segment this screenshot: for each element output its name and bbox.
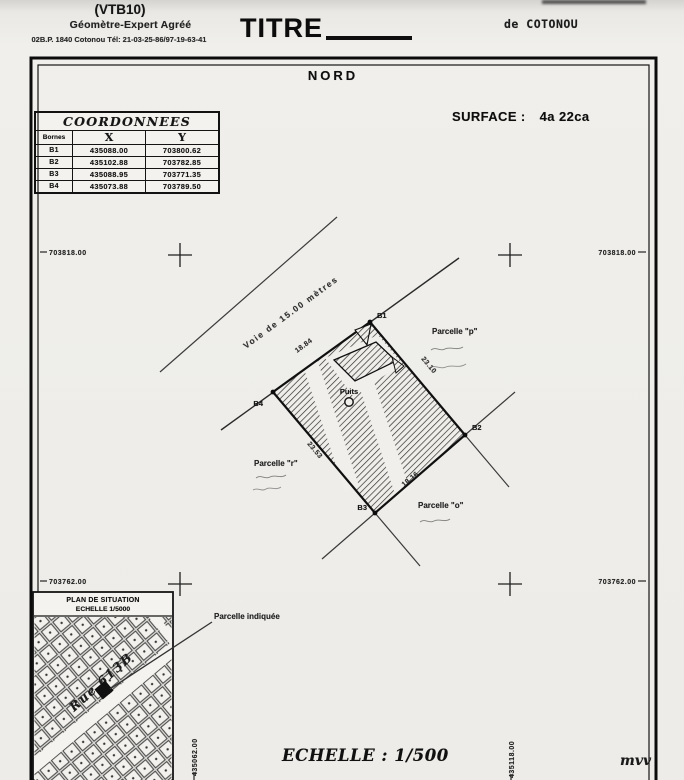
road-label: Voie de 15.00 mètres (241, 274, 340, 351)
parcel-p-label: Parcelle "p" (432, 327, 478, 336)
borne-point-b4 (271, 390, 276, 395)
grid-label-top-left: 703818.00 (49, 250, 87, 257)
measurement-b4-b1: 18.84 (294, 337, 314, 354)
parcel-o-label: Parcelle "o" (418, 501, 464, 510)
grid-label-bottom-left: 703762.00 (49, 579, 87, 586)
scanned-survey-plan: (VTB10) Géomètre-Expert Agréé 02B.P. 184… (0, 0, 684, 780)
svg-text:23.10: 23.10 (419, 356, 437, 375)
extension-line (465, 435, 509, 487)
indicated-parcel-label: Parcelle indiquée (214, 612, 280, 621)
svg-text:435118.00: 435118.00 (509, 741, 516, 778)
handwriting-scribble (420, 519, 450, 522)
grid-cross (498, 572, 522, 596)
well-symbol (345, 398, 353, 406)
svg-text:Voie de 15.00 mètres: Voie de 15.00 mètres (241, 274, 340, 351)
borne-label-b1: B1 (377, 311, 387, 320)
situation-plan: PLAN DE SITUATION ECHELLE 1/5000 Rue 613… (26, 592, 283, 780)
handwriting-scribble (431, 347, 463, 350)
handwritten-initials: mvv (620, 753, 651, 769)
extension-line (322, 513, 375, 559)
borne-label-b4: B4 (253, 399, 263, 408)
cadastral-drawing: Voie de 15.00 mètres (160, 217, 515, 566)
main-scale-label: ECHELLE : 1/500 (282, 746, 449, 765)
situation-plan-title: PLAN DE SITUATION (66, 597, 139, 604)
situation-plan-scale: ECHELLE 1/5000 (76, 606, 131, 613)
svg-text:435062.00: 435062.00 (192, 738, 199, 776)
grid-label-bottom-x-left: 435062.00 (192, 738, 199, 776)
parcel-r-label: Parcelle "r" (254, 459, 298, 468)
north-label: NORD (308, 68, 358, 83)
grid-cross (168, 243, 192, 267)
borne-point-b3 (373, 511, 378, 516)
grid-cross (498, 243, 522, 267)
borne-label-b2: B2 (472, 423, 482, 432)
grid-label-bottom-right: 703762.00 (598, 579, 636, 586)
grid-label-bottom-x-right: 435118.00 (509, 741, 516, 778)
plan-canvas: NORD 703818.00 703818.00 703762.00 70376… (0, 0, 684, 780)
handwriting-scribble (253, 487, 281, 490)
grid-label-top-right: 703818.00 (598, 250, 636, 257)
borne-label-b3: B3 (357, 503, 367, 512)
svg-text:18.84: 18.84 (294, 337, 314, 354)
extension-line (375, 513, 420, 566)
borne-point-b2 (463, 433, 468, 438)
measurement-b1-b2: 23.10 (419, 356, 437, 375)
borne-point-b1 (368, 320, 373, 325)
handwriting-scribble (256, 475, 286, 478)
well-label: Puits (340, 387, 358, 396)
